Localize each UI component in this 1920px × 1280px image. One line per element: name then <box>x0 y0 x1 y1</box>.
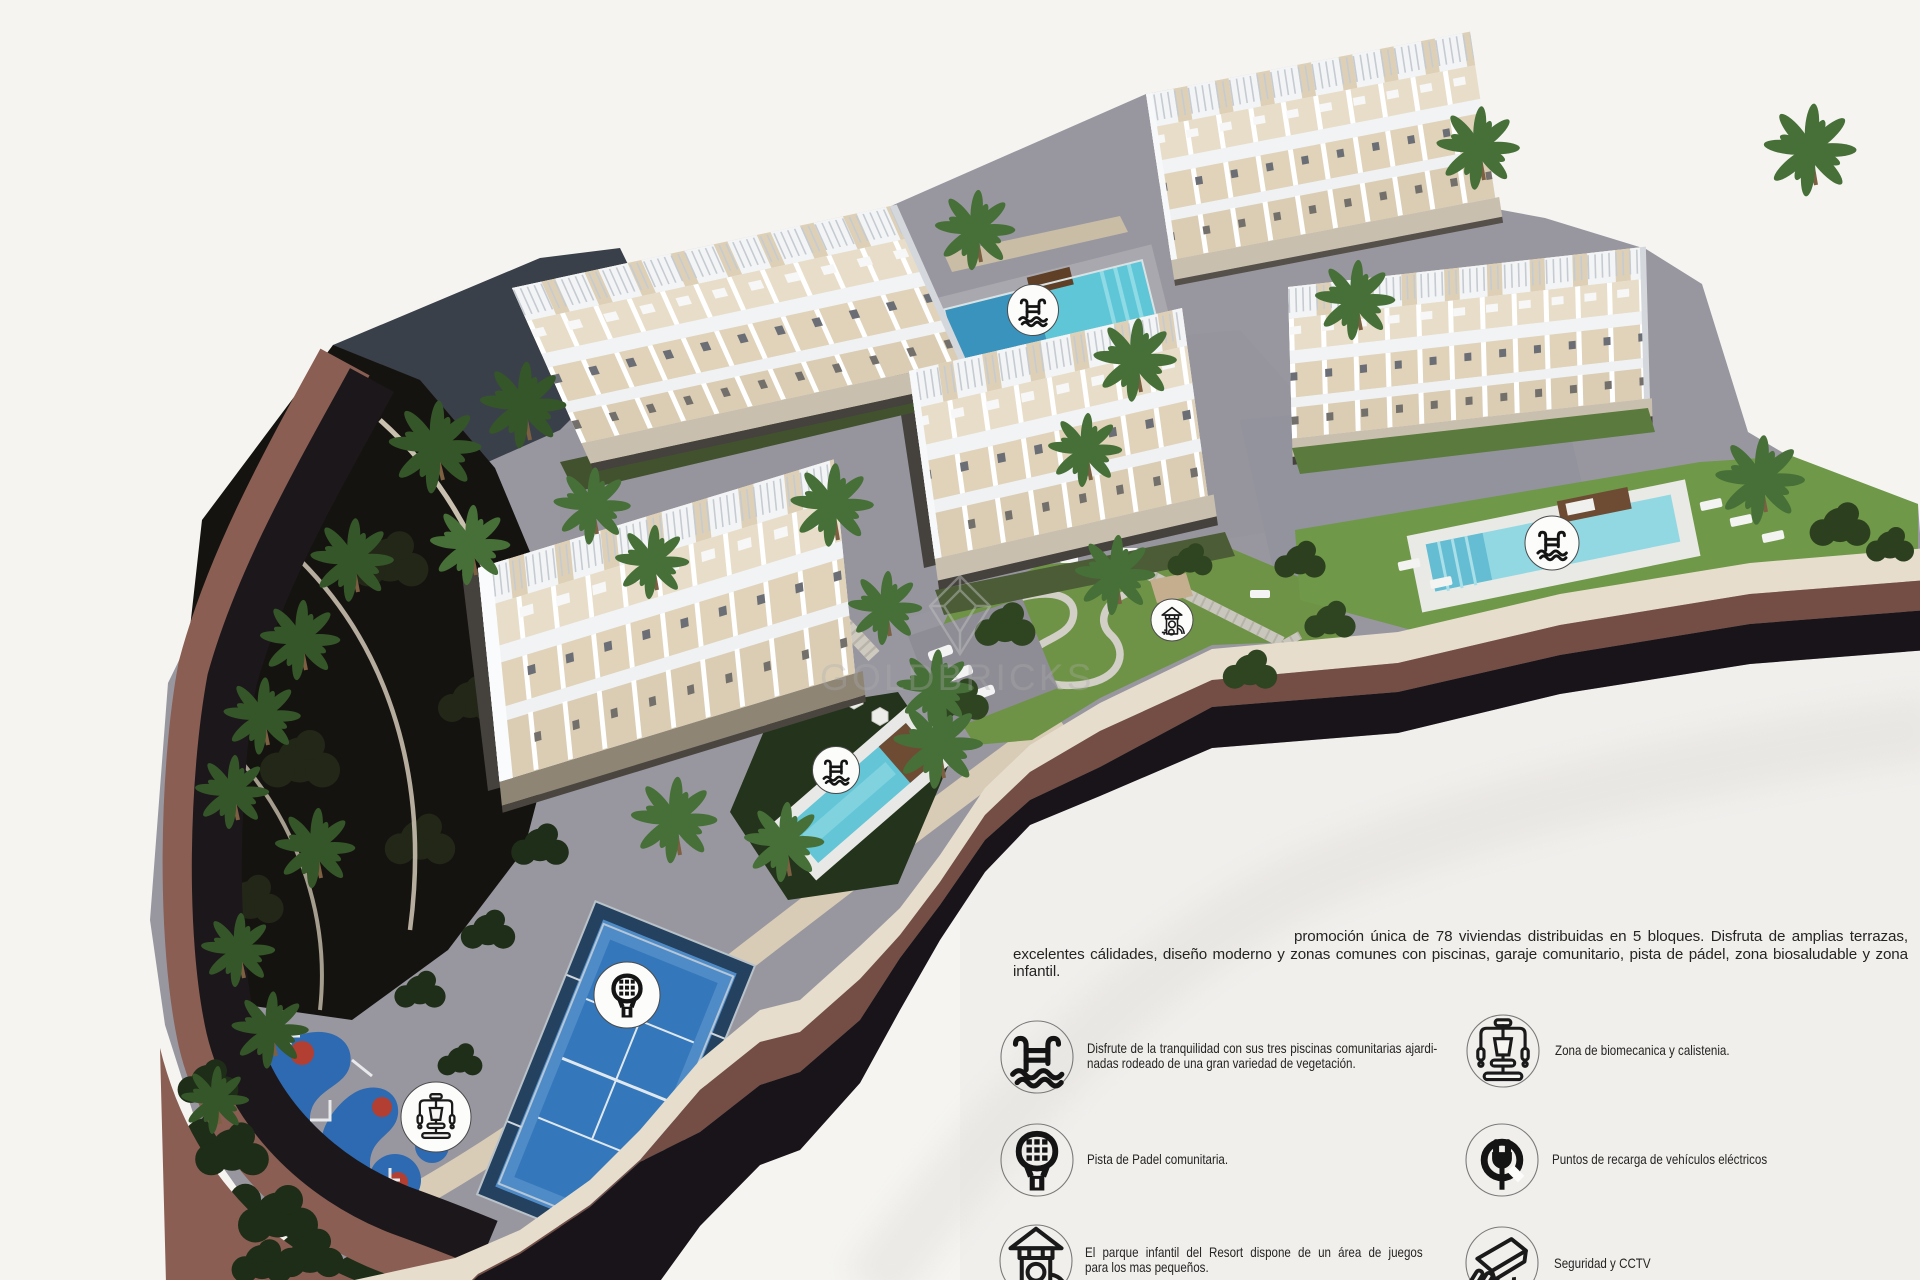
svg-text:GOLDBRICKS: GOLDBRICKS <box>820 657 1095 698</box>
